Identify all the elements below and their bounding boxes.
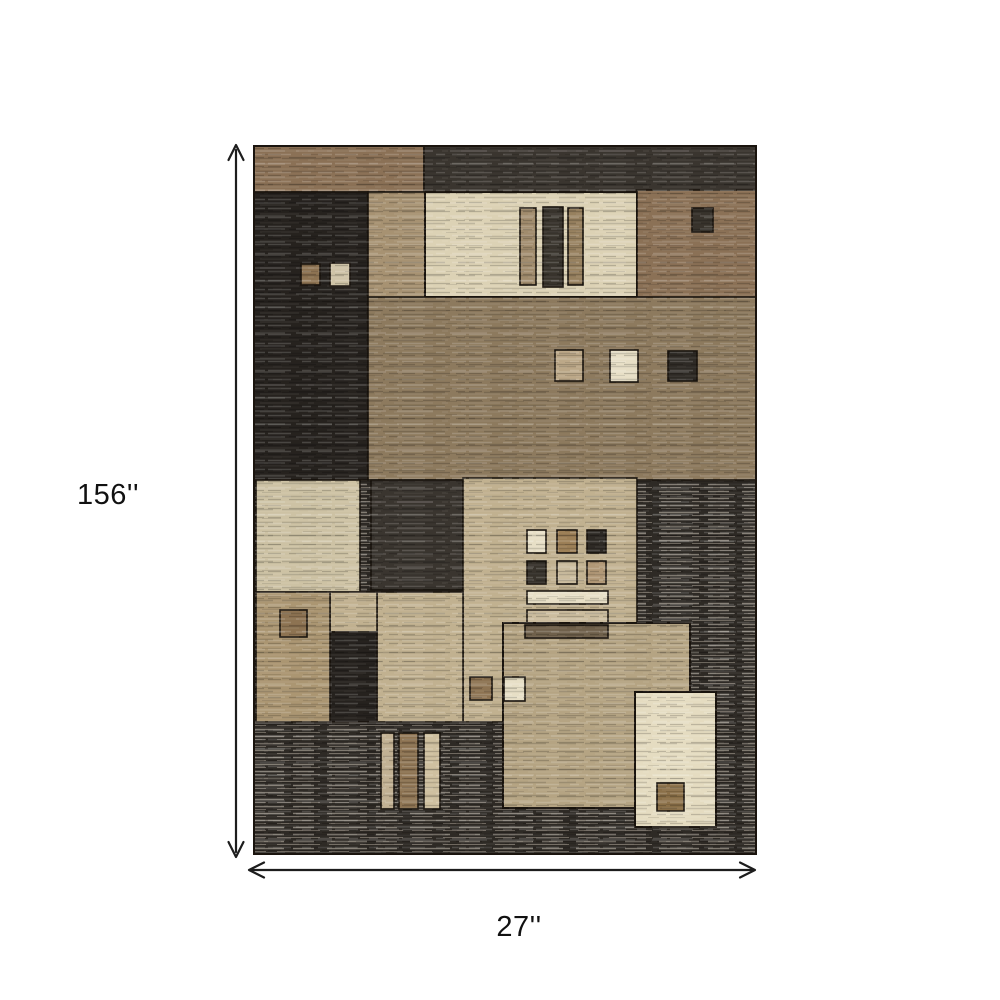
rug-dimension-diagram: 156'' 27'' <box>0 0 1000 1000</box>
rug-texture-overlay-2 <box>254 146 756 854</box>
width-dimension-arrow <box>249 863 755 878</box>
height-dimension-label: 156'' <box>48 479 168 512</box>
height-dimension-arrow <box>229 145 244 857</box>
width-dimension-label: 27'' <box>459 911 579 944</box>
